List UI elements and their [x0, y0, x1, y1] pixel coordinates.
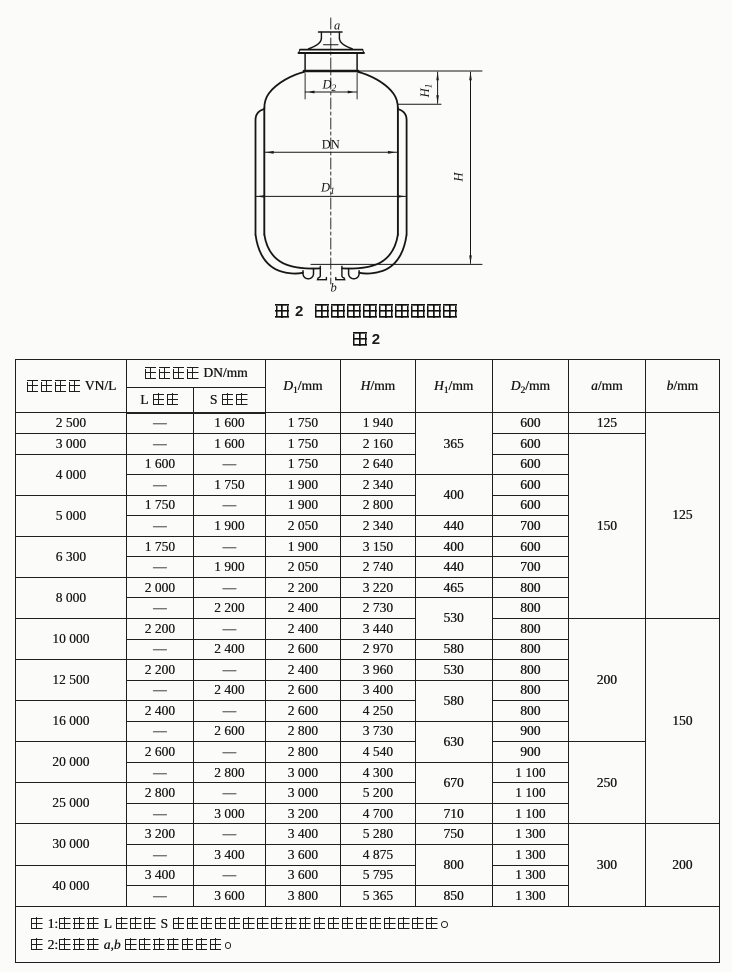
svg-text:H: H: [452, 172, 466, 183]
svg-text:a: a: [334, 19, 340, 33]
svg-text:H1: H1: [418, 84, 434, 99]
svg-text:D2: D2: [322, 78, 337, 94]
svg-text:D1: D1: [320, 181, 335, 197]
svg-text:b: b: [331, 281, 337, 295]
svg-text:DN: DN: [322, 138, 340, 152]
